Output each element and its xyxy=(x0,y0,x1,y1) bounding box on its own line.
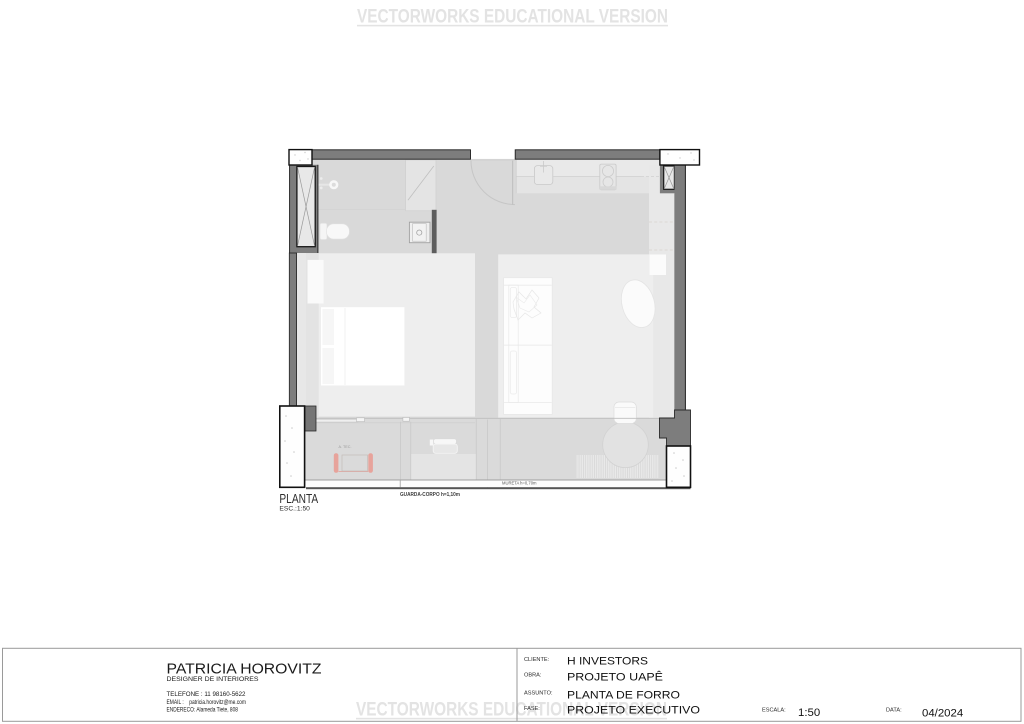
svg-text:MURETA h=0,70m: MURETA h=0,70m xyxy=(502,480,537,485)
svg-text:FASE:: FASE: xyxy=(524,706,540,712)
svg-text:ESC.:1:50: ESC.:1:50 xyxy=(279,506,310,513)
svg-text:ASSUNTO:: ASSUNTO: xyxy=(524,691,553,697)
svg-text:PLANTA: PLANTA xyxy=(279,491,318,506)
svg-text:PROJETO UAPÊ: PROJETO UAPÊ xyxy=(567,670,663,683)
svg-text:VECTORWORKS EDUCATIONAL VERSIO: VECTORWORKS EDUCATIONAL VERSION xyxy=(357,7,668,28)
svg-text:A. TEC.: A. TEC. xyxy=(339,444,352,449)
svg-text:GUARDA-CORPO h=1,10m: GUARDA-CORPO h=1,10m xyxy=(400,492,460,498)
svg-text:EMAIL : patricia.horovitz@m: EMAIL : patricia.horovitz@me.com xyxy=(167,699,247,706)
svg-text:1:50: 1:50 xyxy=(798,707,820,719)
svg-text:OBRA:: OBRA: xyxy=(524,672,542,678)
svg-text:PATRICIA HOROVITZ: PATRICIA HOROVITZ xyxy=(167,662,322,678)
svg-text:PROJETO EXECUTIVO: PROJETO EXECUTIVO xyxy=(567,704,700,716)
svg-text:DESIGNER DE INTERIORES: DESIGNER DE INTERIORES xyxy=(167,676,260,683)
svg-text:DATA:: DATA: xyxy=(886,707,902,713)
svg-text:ENDERECO: Alameda Tiete, 808: ENDERECO: Alameda Tiete, 808 xyxy=(167,707,239,714)
svg-text:TELEFONE : 11 98160-5622: TELEFONE : 11 98160-5622 xyxy=(167,691,247,698)
svg-text:H INVESTORS: H INVESTORS xyxy=(567,656,648,668)
svg-text:CLIENTE:: CLIENTE: xyxy=(524,657,550,663)
svg-text:04/2024: 04/2024 xyxy=(922,708,963,720)
svg-text:ESCALA:: ESCALA: xyxy=(762,707,786,713)
svg-text:PLANTA DE FORRO: PLANTA DE FORRO xyxy=(567,689,680,701)
